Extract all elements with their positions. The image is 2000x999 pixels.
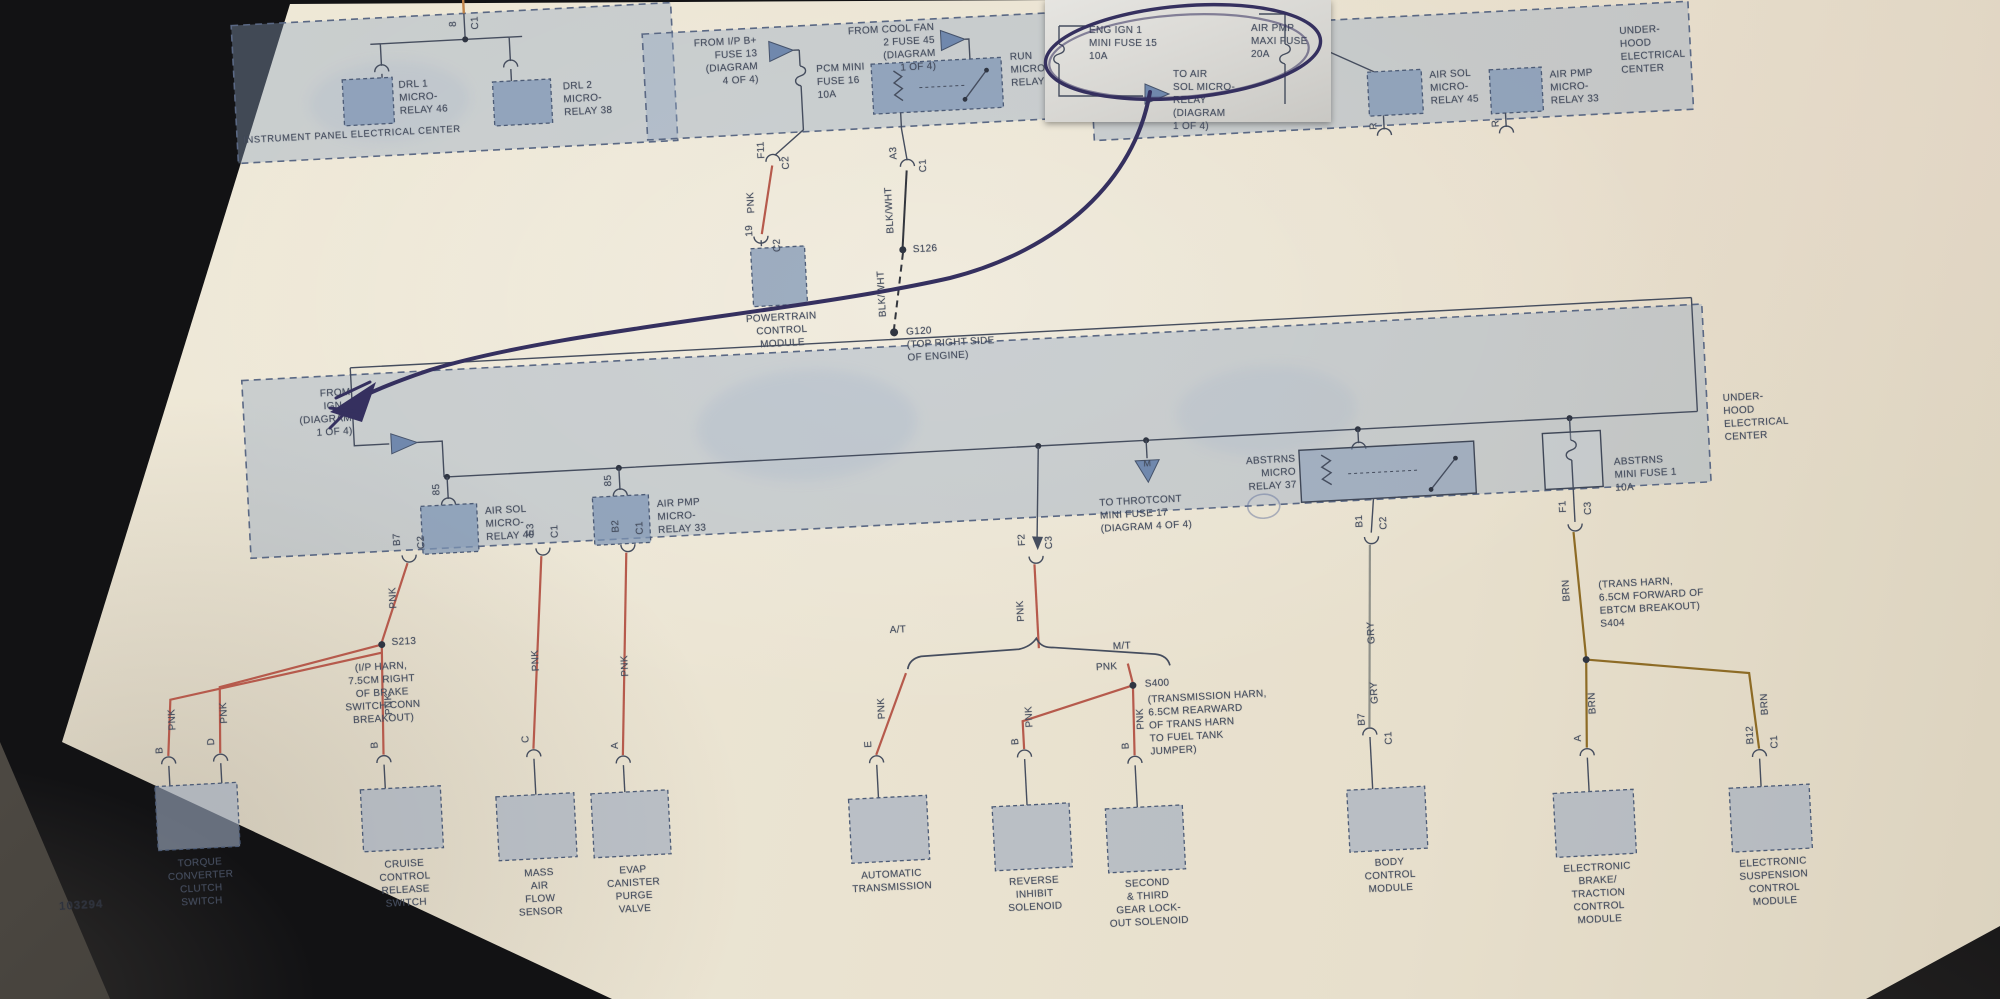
pen-curve (356, 92, 1150, 400)
pen-arrowhead (330, 382, 376, 422)
pen-annotation-layer (0, 0, 2000, 999)
photo-of-wiring-diagram: INSTRUMENT PANEL ELECTRICAL CENTER DRL 1… (0, 0, 2000, 999)
pen-ellipse (1042, 0, 1325, 110)
pen-ellipse-2 (1046, 6, 1311, 106)
